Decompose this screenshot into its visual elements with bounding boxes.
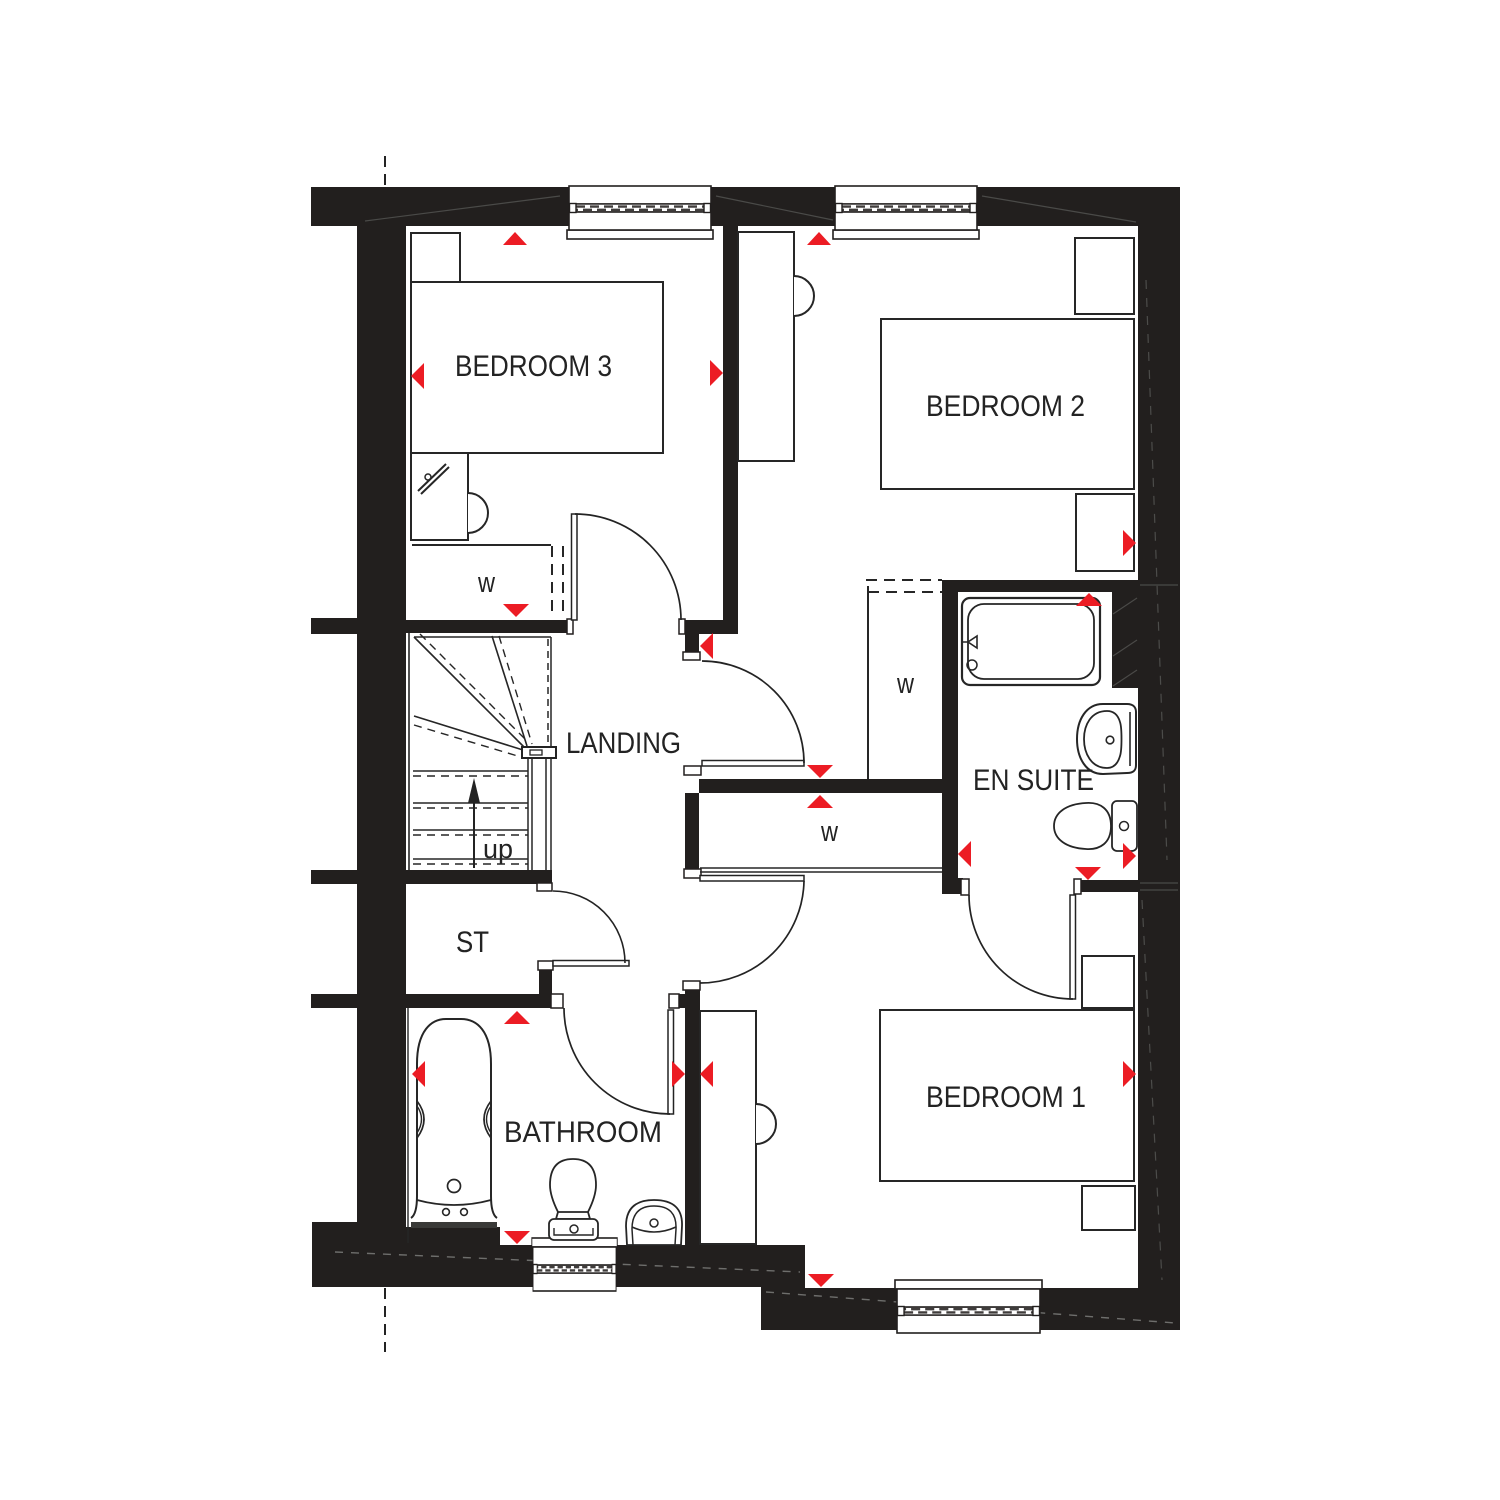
svg-text:w: w [477, 567, 496, 599]
svg-text:BEDROOM 3: BEDROOM 3 [455, 350, 612, 383]
svg-text:w: w [820, 816, 839, 848]
svg-text:EN SUITE: EN SUITE [973, 764, 1094, 797]
svg-text:BEDROOM 1: BEDROOM 1 [926, 1081, 1086, 1114]
svg-text:w: w [896, 668, 915, 700]
svg-text:BEDROOM 2: BEDROOM 2 [926, 390, 1085, 423]
svg-text:up: up [483, 834, 513, 864]
svg-text:ST: ST [456, 926, 489, 959]
svg-text:BATHROOM: BATHROOM [504, 1116, 662, 1149]
svg-text:LANDING: LANDING [566, 727, 681, 760]
